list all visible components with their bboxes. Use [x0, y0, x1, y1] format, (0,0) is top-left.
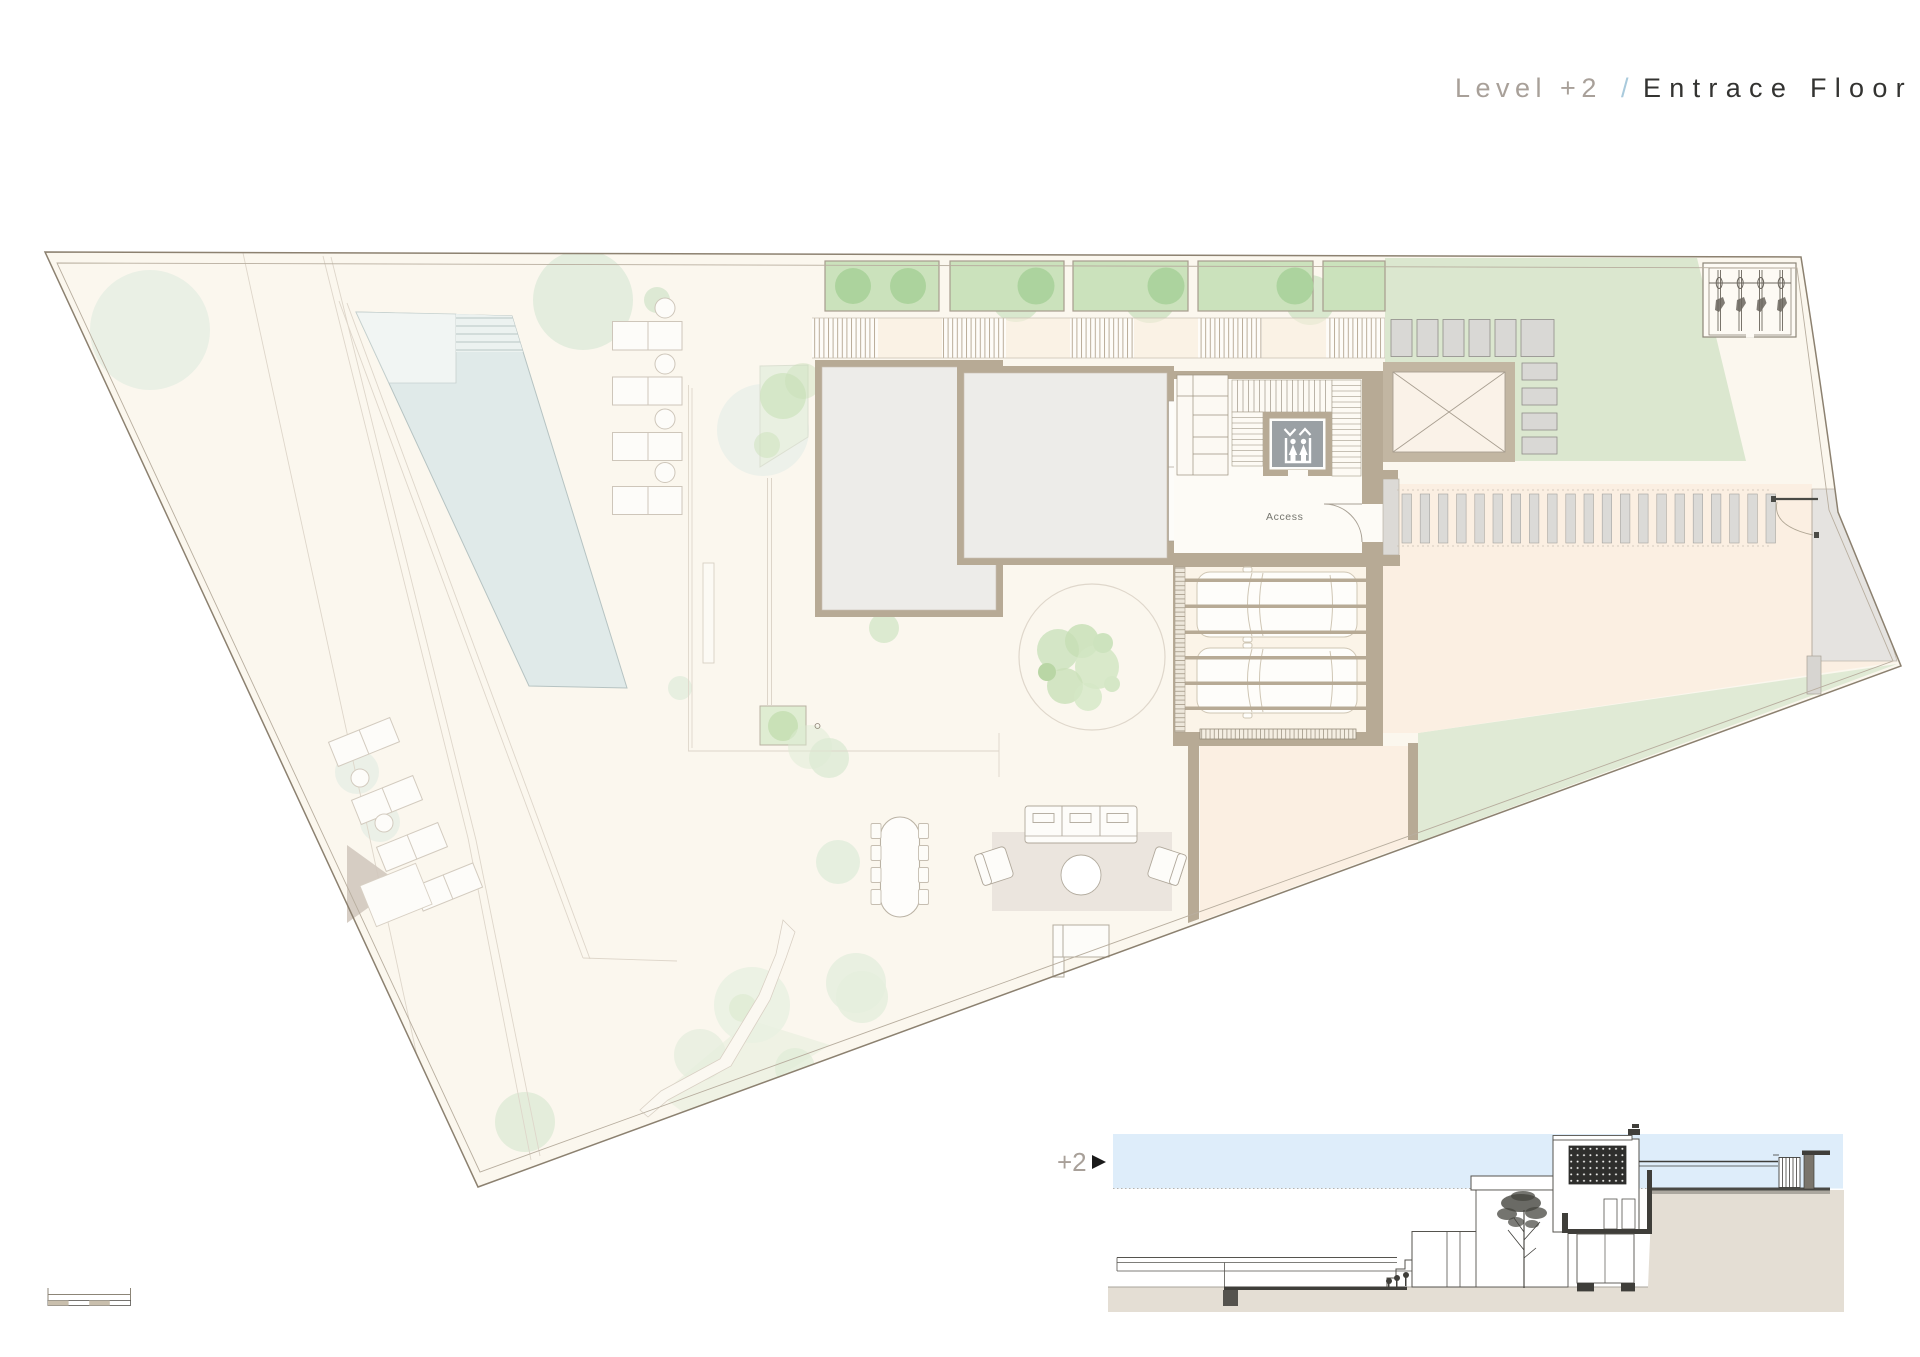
- svg-text:Entrace Floor: Entrace Floor: [1643, 73, 1913, 103]
- svg-text:/: /: [1621, 73, 1629, 103]
- svg-text:Level +2: Level +2: [1455, 73, 1602, 103]
- svg-text:+2: +2: [1057, 1147, 1087, 1177]
- svg-text:Access: Access: [1266, 511, 1303, 523]
